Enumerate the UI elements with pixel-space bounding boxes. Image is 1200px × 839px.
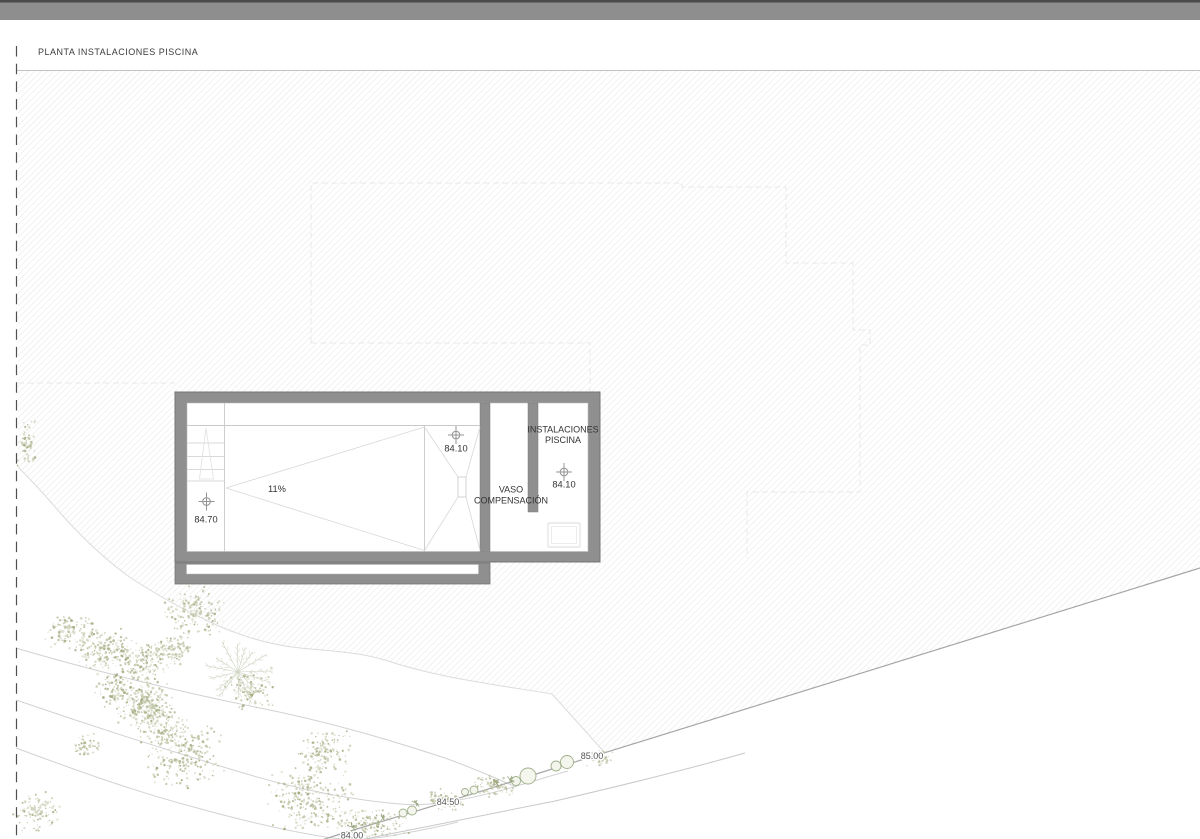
boundary-parallel-line	[346, 753, 745, 839]
site-plan-drawing: 11% 84.10 84.70 VASO COMPENSACIÓN INSTAL…	[0, 0, 1200, 839]
plan-sheet-page: PLANTA INSTALACIONES PISCINA	[0, 0, 1200, 839]
pool-slope-label: 11%	[268, 484, 286, 494]
vegetation-clump	[150, 635, 191, 665]
vegetation-clump	[45, 616, 94, 649]
vaso-room-label-line1: VASO	[499, 485, 523, 495]
grass-tuft-icon	[412, 800, 419, 807]
deep-end-elevation-label: 84.10	[444, 444, 467, 454]
wall-pool-vaso	[480, 403, 490, 552]
shrub-icon	[561, 756, 574, 769]
vegetation-clump	[12, 791, 60, 832]
shrub-icon	[462, 789, 469, 796]
vegetation-clump	[114, 643, 172, 684]
vegetation-clump	[74, 628, 132, 669]
plant-room-label-line2: PISCINA	[545, 435, 581, 445]
vegetation-clump	[298, 730, 352, 771]
shrub-icon	[551, 761, 561, 771]
contour-label-84-50: 84.50	[437, 797, 460, 807]
shrub-icon	[470, 786, 478, 794]
palm-frond	[238, 651, 255, 672]
vegetation-clump	[74, 733, 100, 756]
vegetation-clump	[135, 708, 188, 747]
plant-room-label-line1: INSTALACIONES	[527, 425, 598, 435]
vegetation-clump	[147, 726, 225, 790]
palm-frond	[238, 647, 247, 672]
palm-tree-icon	[205, 640, 273, 706]
pool-structure	[175, 392, 600, 584]
palm-frond	[238, 669, 273, 674]
vegetation-clump	[224, 667, 274, 710]
shrub-icon	[520, 768, 536, 784]
pool-drain-sump	[458, 477, 466, 497]
shallow-end-elevation-label: 84.70	[194, 515, 217, 525]
contour-line-84-00	[16, 748, 458, 839]
shrub-icon	[408, 806, 417, 815]
contour-label-85-00: 85.00	[581, 751, 604, 761]
plant-room-elevation-label: 84.10	[552, 480, 575, 490]
vaso-room-label-line2: COMPENSACIÓN	[474, 496, 548, 506]
vegetation-clump	[474, 775, 514, 798]
shrub-icon	[399, 809, 407, 817]
contour-label-84-00: 84.00	[341, 831, 364, 839]
overflow-trench-channel	[187, 565, 479, 575]
